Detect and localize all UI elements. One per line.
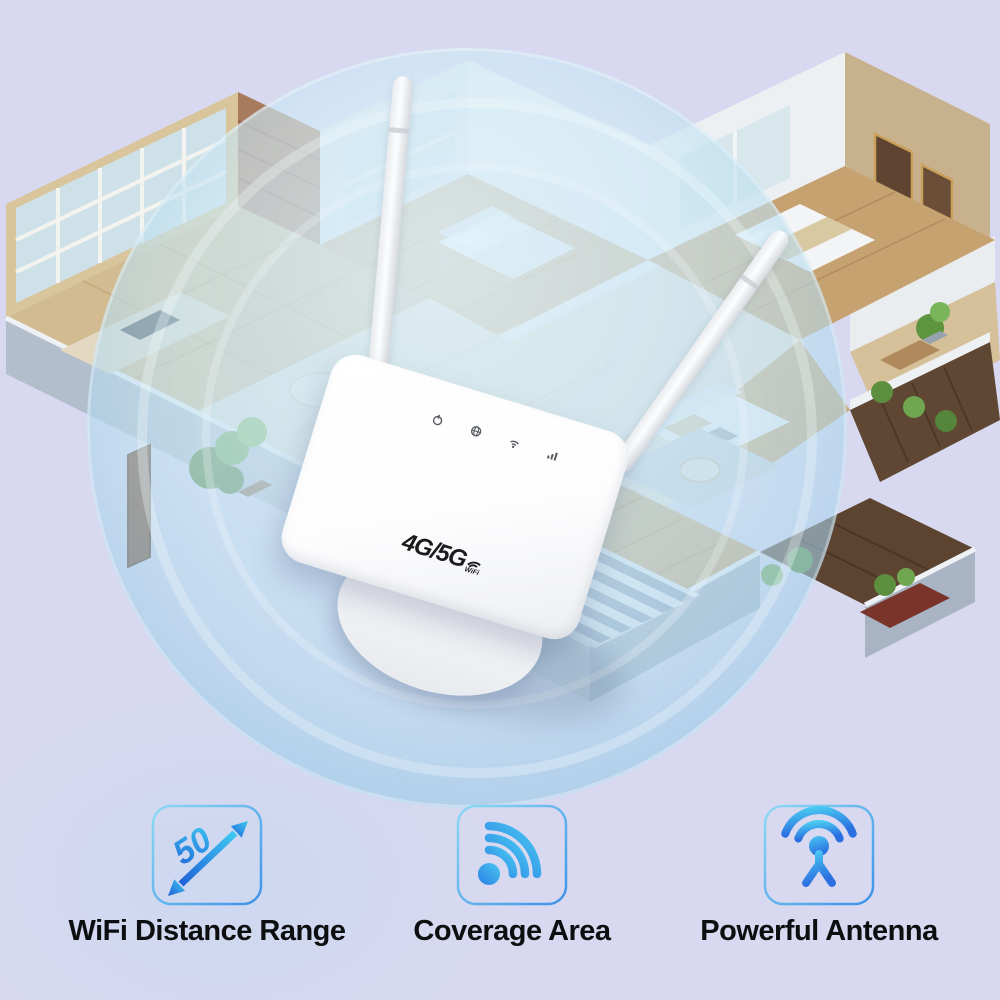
network-led-icon	[469, 424, 484, 439]
wifi-led-icon	[507, 436, 522, 451]
antenna-joint	[740, 274, 759, 290]
router-coverage-banner: 4G/5G WiFi	[0, 0, 1000, 1000]
router-logo-text: 4G/5G	[399, 530, 469, 572]
signal-led-icon	[545, 447, 560, 462]
power-led-icon	[430, 412, 445, 427]
router-led-row	[430, 412, 568, 466]
antenna-joint	[389, 127, 409, 134]
router-logo: 4G/5G WiFi	[399, 530, 485, 577]
